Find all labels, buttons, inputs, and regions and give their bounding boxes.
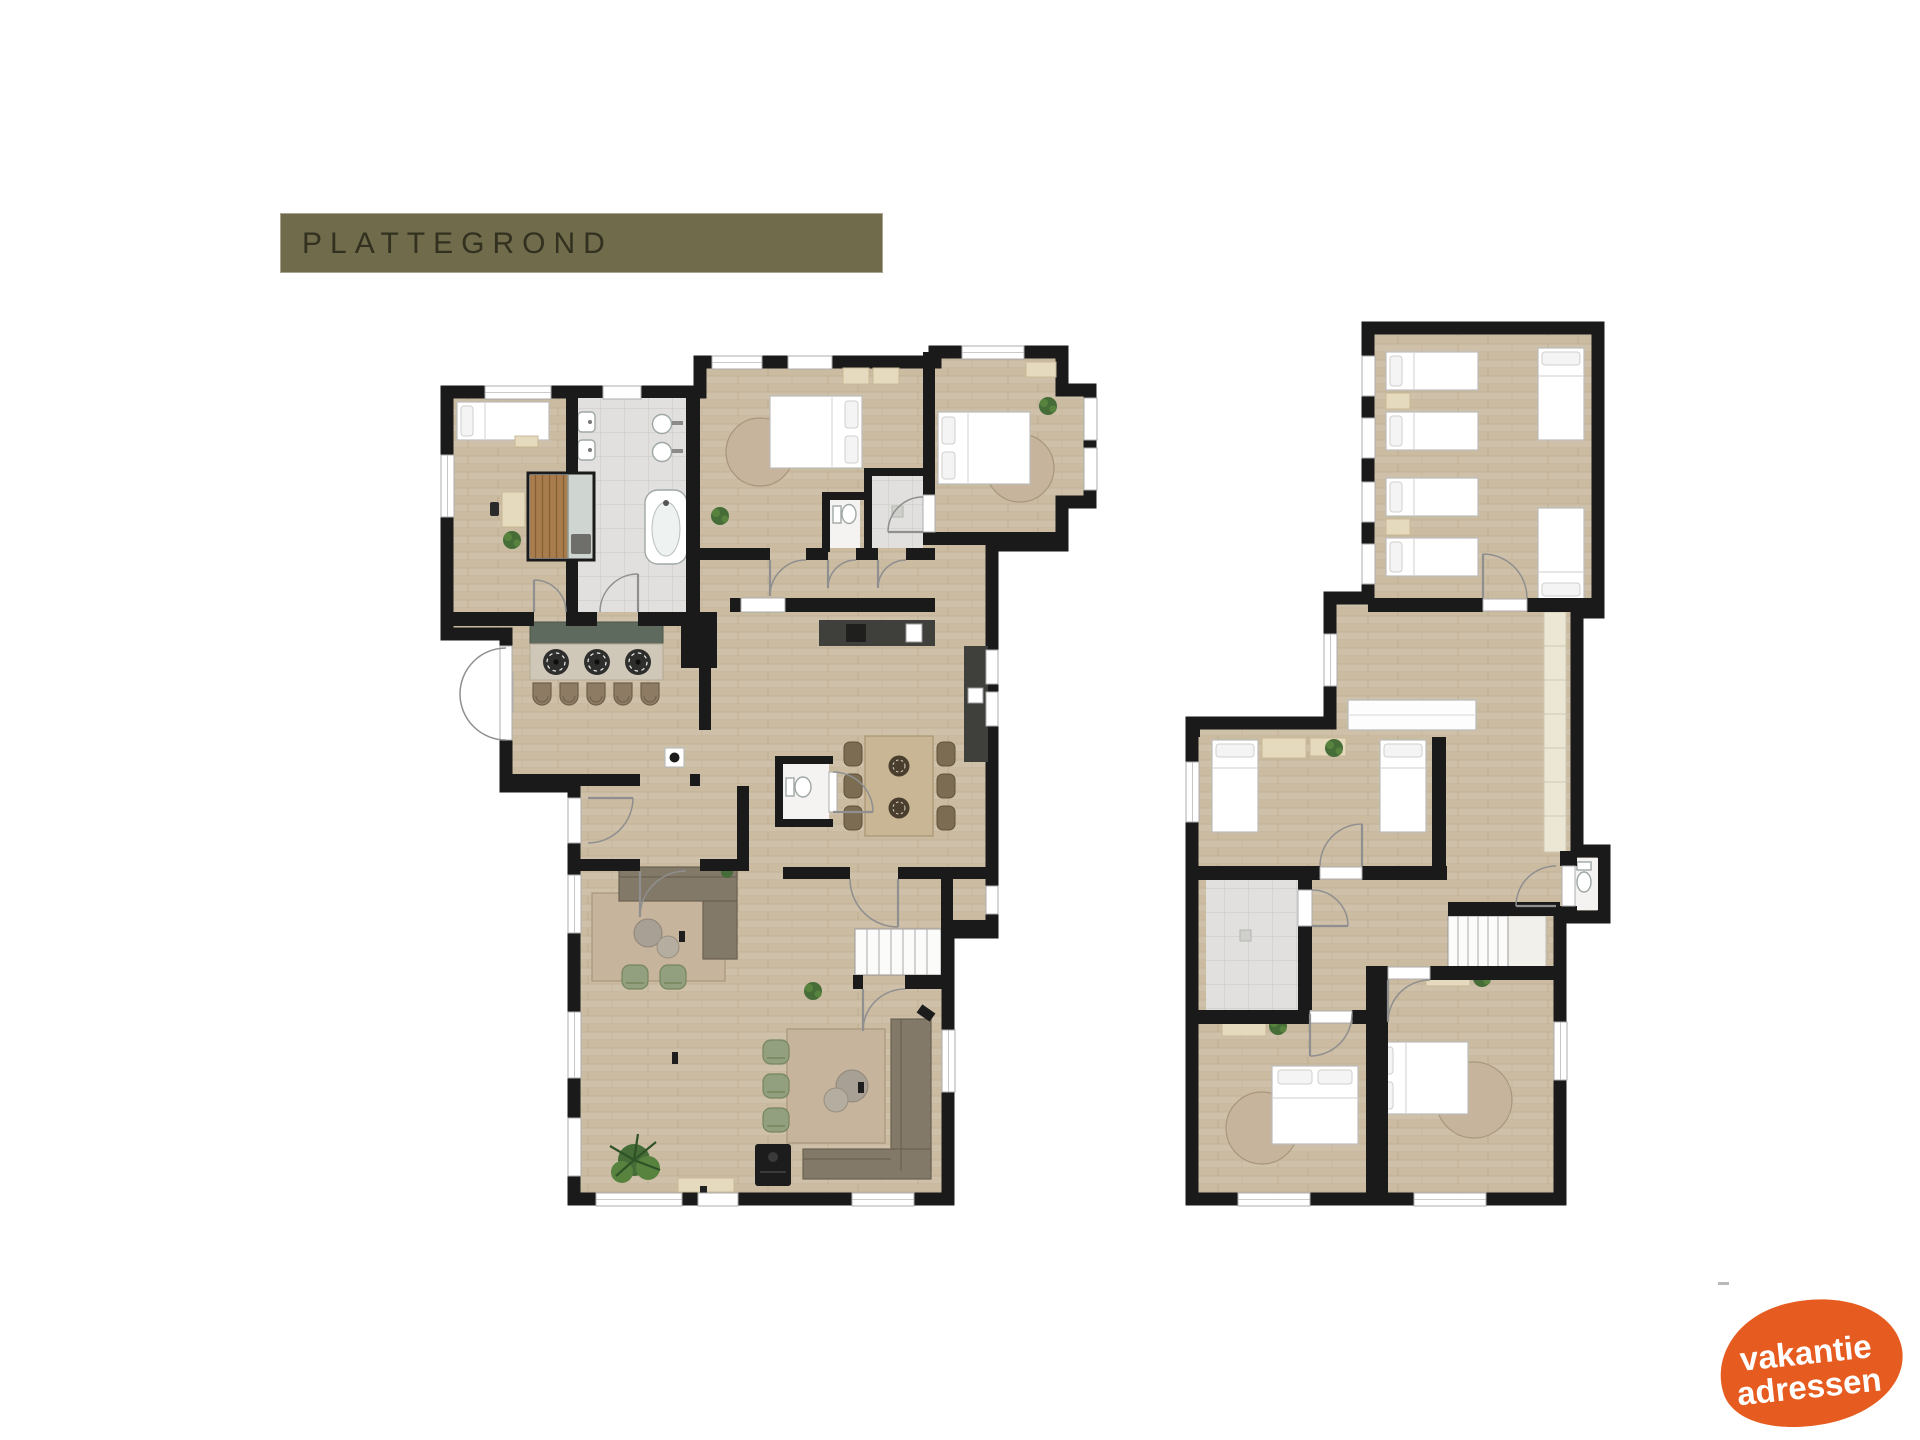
dining-table bbox=[844, 736, 955, 836]
shower-room-tile-floor bbox=[1206, 880, 1298, 1010]
toilet bbox=[1577, 862, 1591, 892]
wood-stove-icon bbox=[755, 1144, 791, 1186]
first-floor-plan bbox=[1186, 328, 1604, 1206]
ensuite-toilet bbox=[833, 505, 856, 524]
ground-floor-plan bbox=[441, 346, 1097, 1206]
appliance-dock bbox=[665, 748, 684, 767]
stray-mark bbox=[1718, 1282, 1729, 1285]
floorplan-canvas bbox=[0, 0, 1920, 1440]
staircase bbox=[1448, 916, 1546, 968]
bathtub-icon bbox=[645, 490, 687, 564]
staircase bbox=[855, 929, 941, 975]
shower-mat-icon bbox=[571, 534, 591, 554]
kitchen-island bbox=[530, 622, 663, 705]
shower-drain-icon bbox=[1240, 930, 1251, 941]
page: PLATTEGROND bbox=[0, 0, 1920, 1440]
vakantieadressen-logo: vakantie adressen bbox=[1700, 1292, 1915, 1440]
guest-toilet bbox=[786, 777, 811, 797]
